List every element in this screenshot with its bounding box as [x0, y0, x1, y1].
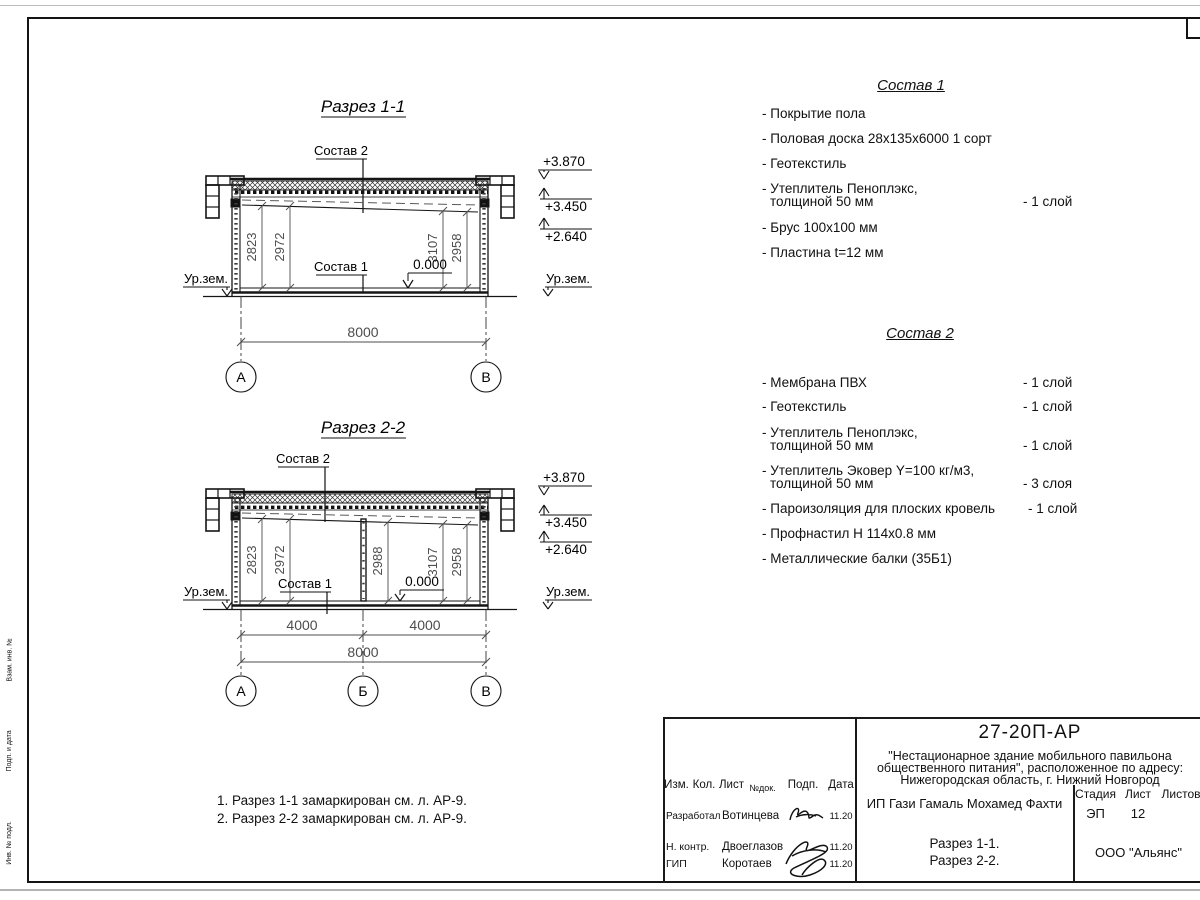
- axis-bubble-label: В: [481, 369, 490, 385]
- callout-roof-label: Состав 2: [276, 451, 330, 466]
- frame-stamp-label: Инв. № подл.: [6, 805, 14, 881]
- tb-sheet-value: 12: [1118, 807, 1158, 822]
- sostav2-title: Состав 2: [855, 326, 985, 343]
- dim-value: 2972: [272, 546, 287, 575]
- elevation-value: +3.870: [543, 154, 585, 169]
- dim-value: 2958: [449, 234, 464, 263]
- zero-level-label: 0.000: [405, 574, 439, 589]
- tb-col-izm: Изм.: [663, 779, 690, 792]
- list-item-qty: - 1 слой: [1023, 438, 1072, 453]
- section-2-2-drawing: Разрез 2-2 Состав 2: [180, 400, 620, 720]
- list-item: - Половая доска 28х135х6000 1 сорт: [762, 131, 992, 146]
- tb-stage-label: Стадия: [1073, 788, 1118, 801]
- list-item: - Пароизоляция для плоских кровель: [762, 501, 995, 516]
- tb-name: Коротаев: [722, 858, 772, 871]
- tb-col-list: Лист: [718, 779, 745, 792]
- elevation-value: +2.640: [545, 229, 587, 244]
- tb-name: Вотинцева: [722, 810, 779, 823]
- floor-and-ground: [203, 601, 517, 610]
- list-item: - Покрытие пола: [762, 106, 865, 121]
- dim-value: 2972: [272, 233, 287, 262]
- elevation-marks: +3.870 +3.450 +2.640: [538, 470, 592, 557]
- tb-doc-number: 27-20П-АР: [856, 722, 1200, 743]
- callout-floor-label: Состав 1: [314, 259, 368, 274]
- callout-floor-label: Состав 1: [278, 576, 332, 591]
- elevation-marks: +3.870 +3.450 +2.640: [538, 154, 592, 244]
- drawing-sheet: Взам. инв. № Подп. и дата Инв. № подл. Р…: [0, 0, 1200, 900]
- axis-grid: 4000 4000 8000 А Б В: [226, 609, 501, 706]
- zero-level-label: 0.000: [413, 257, 447, 272]
- tb-sheets-label: Листов: [1158, 788, 1200, 801]
- note-line: 1. Разрез 1-1 замаркирован см. л. АР-9.: [217, 793, 467, 808]
- list-item-qty: - 3 слоя: [1023, 476, 1072, 491]
- dim-value: 3107: [425, 548, 440, 577]
- list-item: - Металлические балки (35Б1): [762, 551, 952, 566]
- section-1-1-drawing: Разрез 1-1 Состав 2: [180, 80, 620, 400]
- dim-value: 2823: [244, 233, 259, 262]
- list-item-line2: толщиной 50 мм: [770, 194, 873, 209]
- callout-floor: Состав 1: [278, 576, 332, 614]
- list-item-qty: - 1 слой: [1028, 501, 1077, 516]
- page-edge-bottom: [0, 889, 1200, 891]
- tb-date: 11.20: [828, 812, 854, 823]
- tb-role: Разработал: [666, 811, 720, 822]
- tb-role: ГИП: [666, 859, 687, 871]
- list-item: - Геотекстиль: [762, 156, 846, 171]
- ground-label-left: Ур.зем.: [184, 584, 228, 599]
- list-item-qty: - 1 слой: [1023, 399, 1072, 414]
- format-box: [1186, 17, 1200, 39]
- list-item-qty: - 1 слой: [1023, 194, 1072, 209]
- frame-stamp-label: Подп. и дата: [6, 697, 14, 805]
- tb-stage-value: ЭП: [1073, 807, 1118, 822]
- sostav1-title: Состав 1: [846, 78, 976, 95]
- zero-level-mark: 0.000: [395, 574, 444, 601]
- callout-roof-label: Состав 2: [314, 143, 368, 158]
- dim-span: 4000: [286, 617, 317, 633]
- ground-label-left: Ур.зем.: [184, 271, 228, 286]
- dim-value: 2823: [244, 546, 259, 575]
- section-title: Разрез 1-1: [321, 97, 405, 116]
- tb-name: Двоеглазов: [722, 841, 783, 854]
- tb-col-kol: Кол.: [690, 779, 718, 792]
- elevation-value: +3.450: [545, 515, 587, 530]
- dim-value: 2988: [370, 547, 385, 576]
- axis-bubble-label: А: [236, 683, 246, 699]
- tb-client: ИП Гази Гамаль Мохамед Фахти: [856, 797, 1073, 812]
- tb-company: ООО "Альянс": [1073, 846, 1200, 861]
- list-item-line2: толщиной 50 мм: [770, 476, 873, 491]
- tb-role: Н. контр.: [666, 842, 709, 854]
- signature-dvoeglazov-korotaev: [780, 834, 834, 880]
- signature-votintseva: [786, 804, 826, 824]
- dim-span: 4000: [409, 617, 440, 633]
- callout-roof: Состав 2: [276, 451, 330, 522]
- tb-col-ndok: №док.: [745, 783, 780, 793]
- list-item-line2: толщиной 50 мм: [770, 438, 873, 453]
- axis-bubble-label: А: [236, 369, 246, 385]
- dim-total: 8000: [347, 324, 378, 340]
- roof-assembly: [230, 492, 490, 525]
- list-item: - Профнастил Н 114х0.8 мм: [762, 526, 936, 541]
- list-item: - Брус 100х100 мм: [762, 220, 878, 235]
- zero-level-mark: 0.000: [403, 257, 452, 288]
- axis-grid: 8000 А В: [226, 296, 501, 392]
- ground-label-right: Ур.зем.: [546, 584, 590, 599]
- roof-assembly: [230, 179, 490, 212]
- list-item: - Пластина t=12 мм: [762, 245, 884, 260]
- ground-label-right: Ур.зем.: [546, 271, 590, 286]
- floor-and-ground: [203, 288, 517, 297]
- dim-value: 2958: [449, 548, 464, 577]
- dim-total: 8000: [347, 644, 378, 660]
- tb-col-podp: Подп.: [780, 779, 826, 792]
- tb-drawing-title: Разрез 2-2.: [856, 853, 1073, 868]
- frame-stamp-label: Взам. инв. №: [7, 623, 15, 696]
- section-title: Разрез 2-2: [321, 418, 406, 437]
- tb-drawing-title: Разрез 1-1.: [856, 836, 1073, 851]
- tb-col-data: Дата: [826, 779, 856, 792]
- elevation-value: +3.450: [545, 199, 587, 214]
- list-item: - Геотекстиль: [762, 399, 846, 414]
- elevation-value: +3.870: [543, 470, 585, 485]
- list-item: - Мембрана ПВХ: [762, 375, 867, 390]
- tb-sheet-label: Лист: [1118, 788, 1158, 801]
- list-item-qty: - 1 слой: [1023, 375, 1072, 390]
- axis-bubble-label: В: [481, 683, 490, 699]
- elevation-value: +2.640: [545, 542, 587, 557]
- page-edge-top: [0, 5, 1200, 6]
- axis-bubble-label: Б: [358, 683, 367, 699]
- note-line: 2. Разрез 2-2 замаркирован см. л. АР-9.: [217, 811, 467, 826]
- tb-project-line: Нижегородская область, г. Нижний Новгоро…: [856, 773, 1200, 787]
